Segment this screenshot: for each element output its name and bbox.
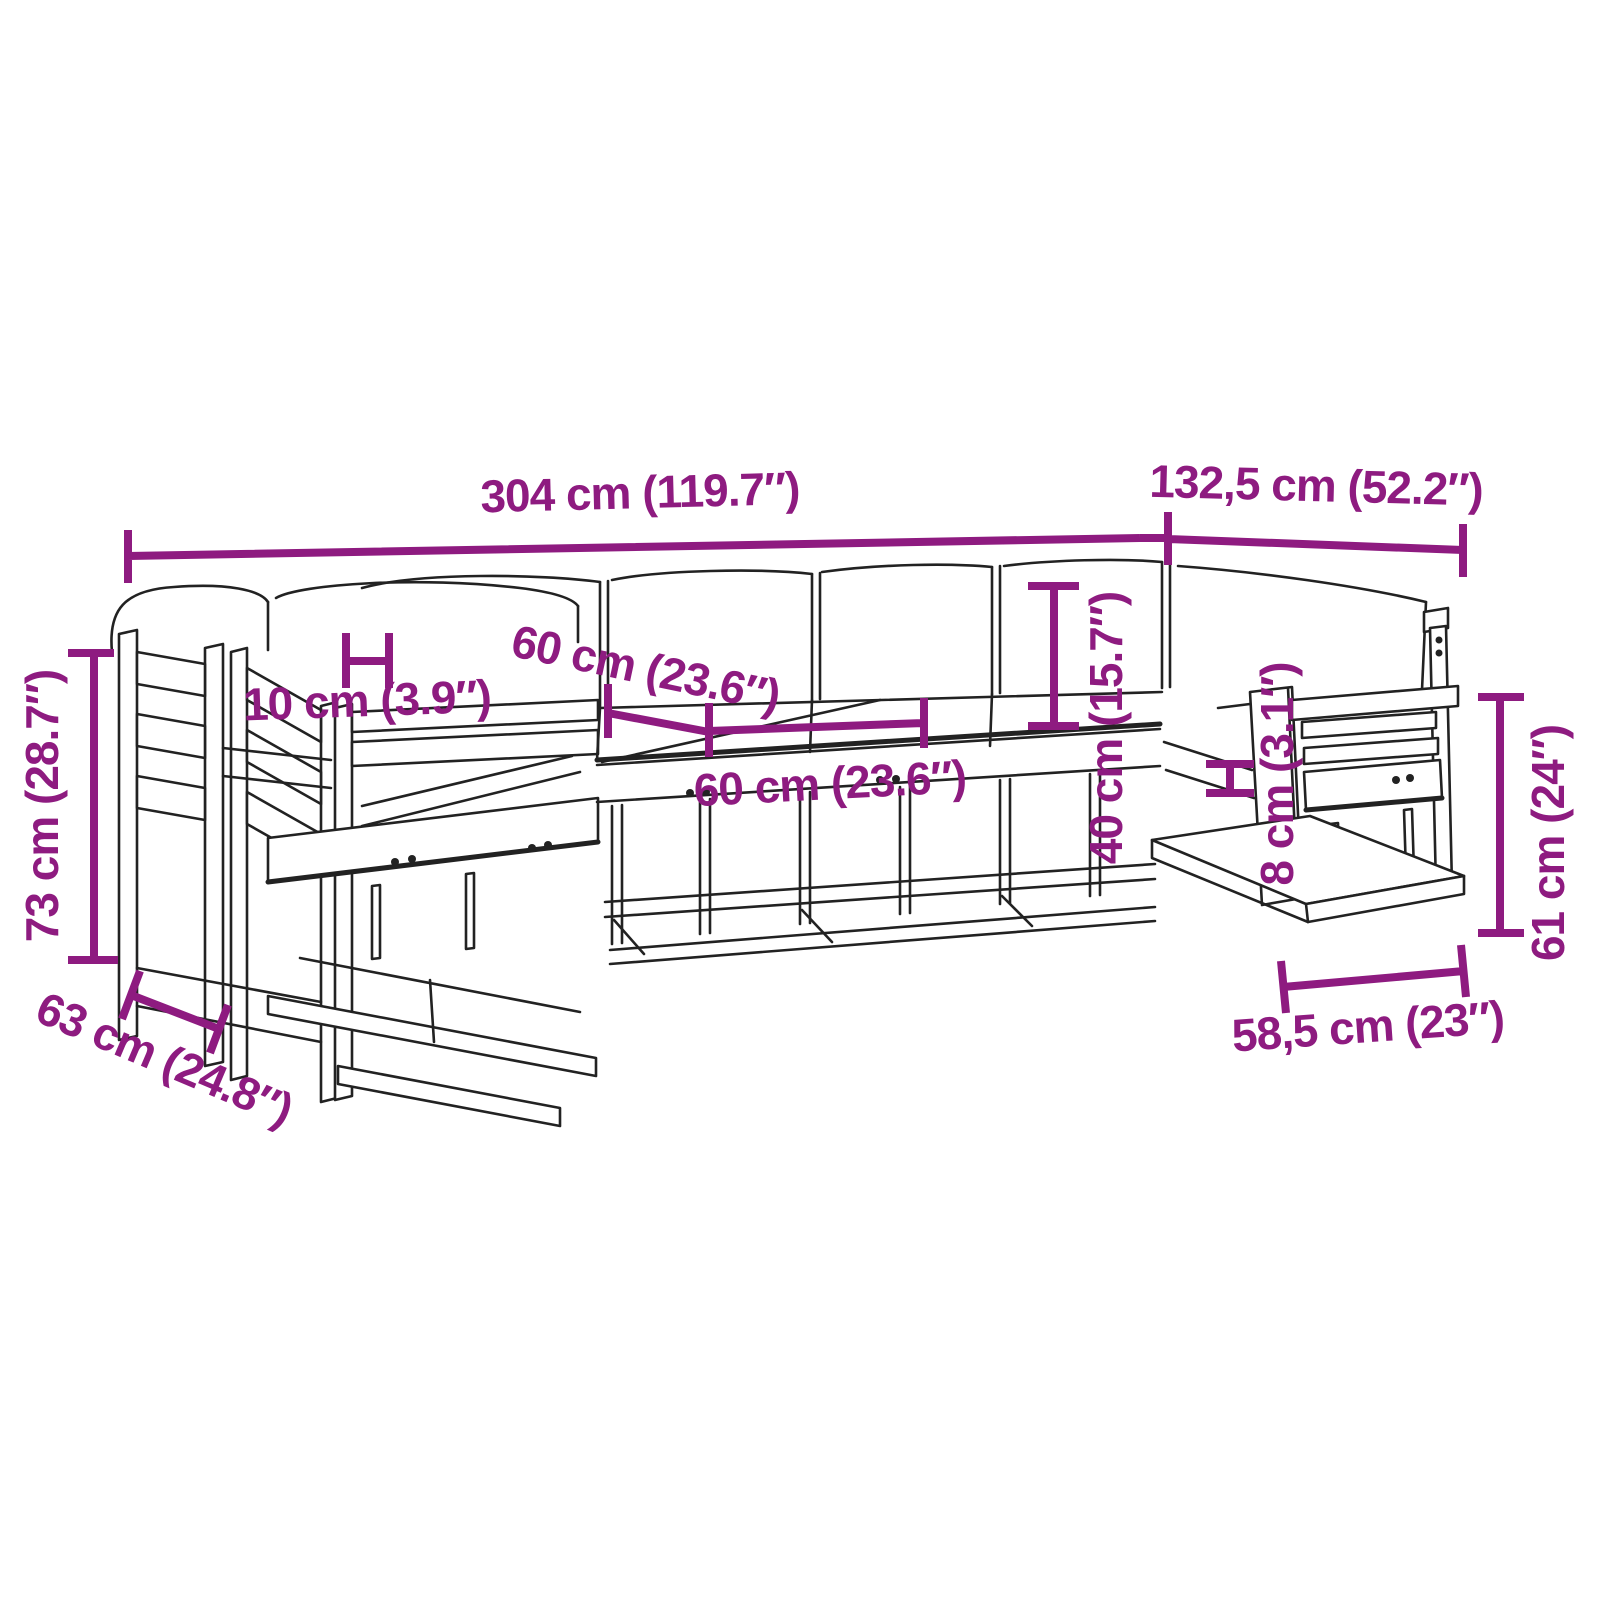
dim-right-module-width: 58,5 cm (23″) <box>1230 945 1505 1062</box>
left-chair-armrest <box>352 730 598 766</box>
screw <box>544 841 552 849</box>
dim-line <box>1028 586 1079 726</box>
left-chair-strut <box>372 885 380 959</box>
left-panel-post <box>205 644 223 1066</box>
left-inner-slat <box>247 730 321 804</box>
left-chair-apron <box>268 798 598 882</box>
dim-label-armrest-height: 61 cm (24″) <box>1522 725 1574 961</box>
screw <box>1436 637 1443 644</box>
dim-label-seat-width-lower: 60 cm (23.6″) <box>692 750 967 816</box>
dim-armrest-gap: 10 cm (3.9″) <box>242 633 491 730</box>
left-chair-post <box>335 704 352 1100</box>
dim-line <box>1478 697 1524 933</box>
dim-backrest-height: 40 cm (15.7″) <box>1028 586 1132 864</box>
dim-line <box>68 653 118 960</box>
dimension-diagram: 304 cm (119.7″) 132,5 cm (52.2″) 73 cm (… <box>0 0 1600 1600</box>
dim-label-armrest-gap: 10 cm (3.9″) <box>242 670 491 731</box>
left-chair-bottom-rail <box>338 1066 560 1126</box>
screw <box>408 855 416 863</box>
screw <box>1406 774 1414 782</box>
diagram-canvas: 304 cm (119.7″) 132,5 cm (52.2″) 73 cm (… <box>0 0 1600 1600</box>
middle-floor-rails <box>610 907 1155 964</box>
dim-label-overall-depth-right: 132,5 cm (52.2″) <box>1149 455 1484 516</box>
screw <box>1436 650 1443 657</box>
right-armrest-back <box>1218 704 1250 708</box>
screw <box>1392 776 1400 784</box>
dim-label-overall-height: 73 cm (28.7″) <box>16 670 68 942</box>
corner-cushion <box>276 582 578 606</box>
dim-label-cushion-thickness: 8 cm (3.1″) <box>1251 662 1303 885</box>
dim-armrest-height: 61 cm (24″) <box>1478 697 1574 961</box>
dim-label-right-module-width: 58,5 cm (23″) <box>1230 991 1505 1062</box>
screw <box>391 858 399 866</box>
dim-left-module-depth: 63 cm (24.8″) <box>29 971 300 1136</box>
dim-label-backrest-height: 40 cm (15.7″) <box>1080 592 1132 864</box>
left-chair-strut <box>466 873 474 949</box>
middle-lower-rails <box>605 864 1155 917</box>
dim-label-overall-width: 304 cm (119.7″) <box>480 462 800 522</box>
left-panel-slat <box>137 714 205 758</box>
right-slat <box>1304 738 1438 764</box>
dim-overall-depth-right: 132,5 cm (52.2″) <box>1140 455 1483 577</box>
dim-overall-height: 73 cm (28.7″) <box>16 653 118 960</box>
right-outer-post <box>1430 626 1452 888</box>
left-panel-slat <box>137 776 205 820</box>
dim-overall-width: 304 cm (119.7″) <box>128 462 1140 583</box>
screw <box>528 844 536 852</box>
right-cushion-top <box>1178 566 1426 602</box>
left-panel-slat <box>137 652 205 696</box>
